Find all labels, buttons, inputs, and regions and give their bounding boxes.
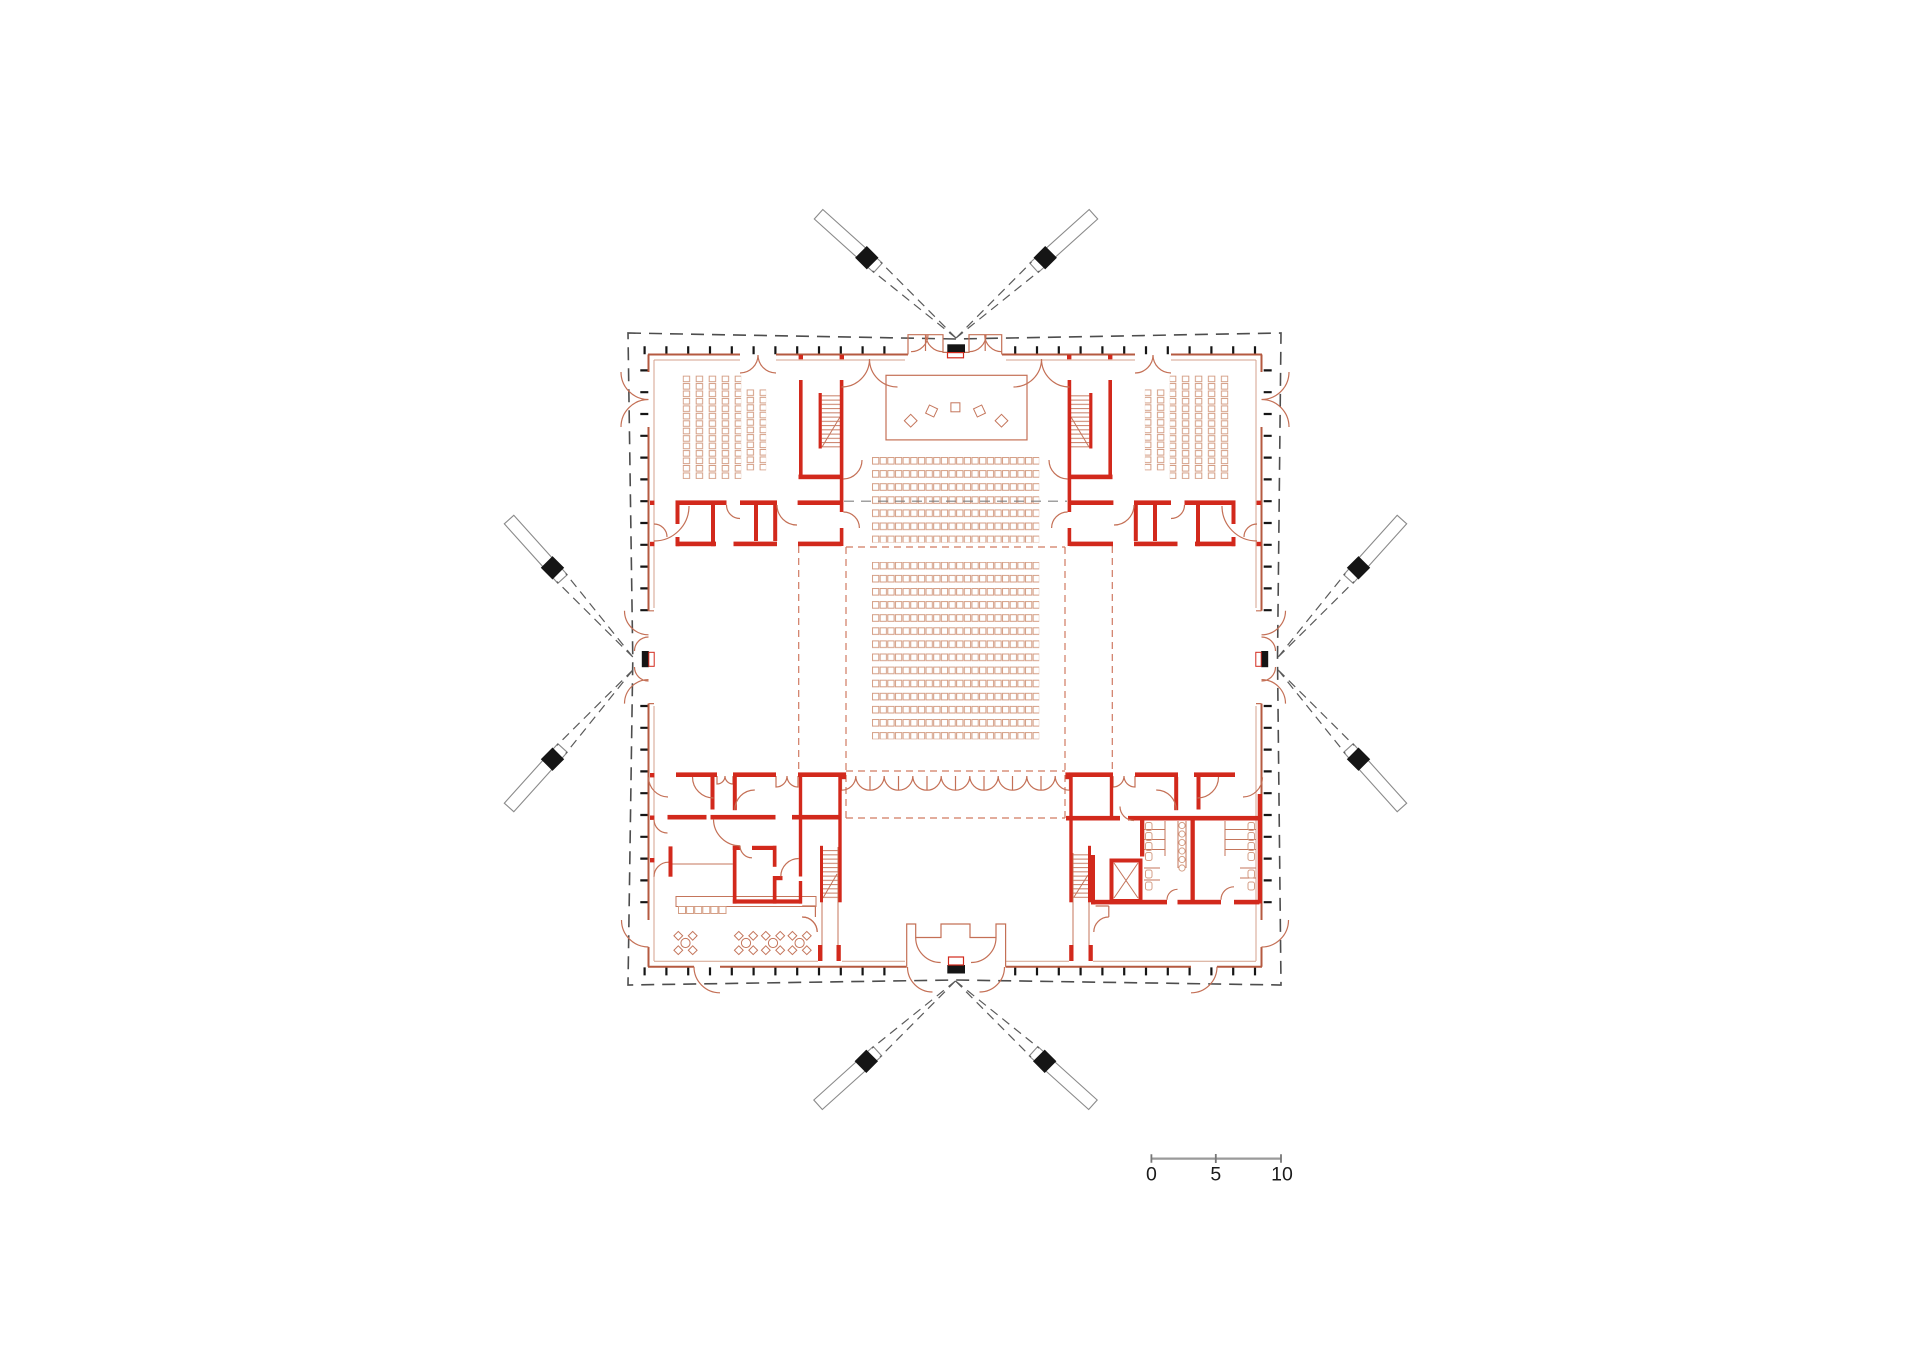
svg-text:0: 0 xyxy=(1146,1164,1157,1186)
svg-text:10: 10 xyxy=(1271,1164,1293,1186)
svg-text:5: 5 xyxy=(1210,1164,1221,1186)
